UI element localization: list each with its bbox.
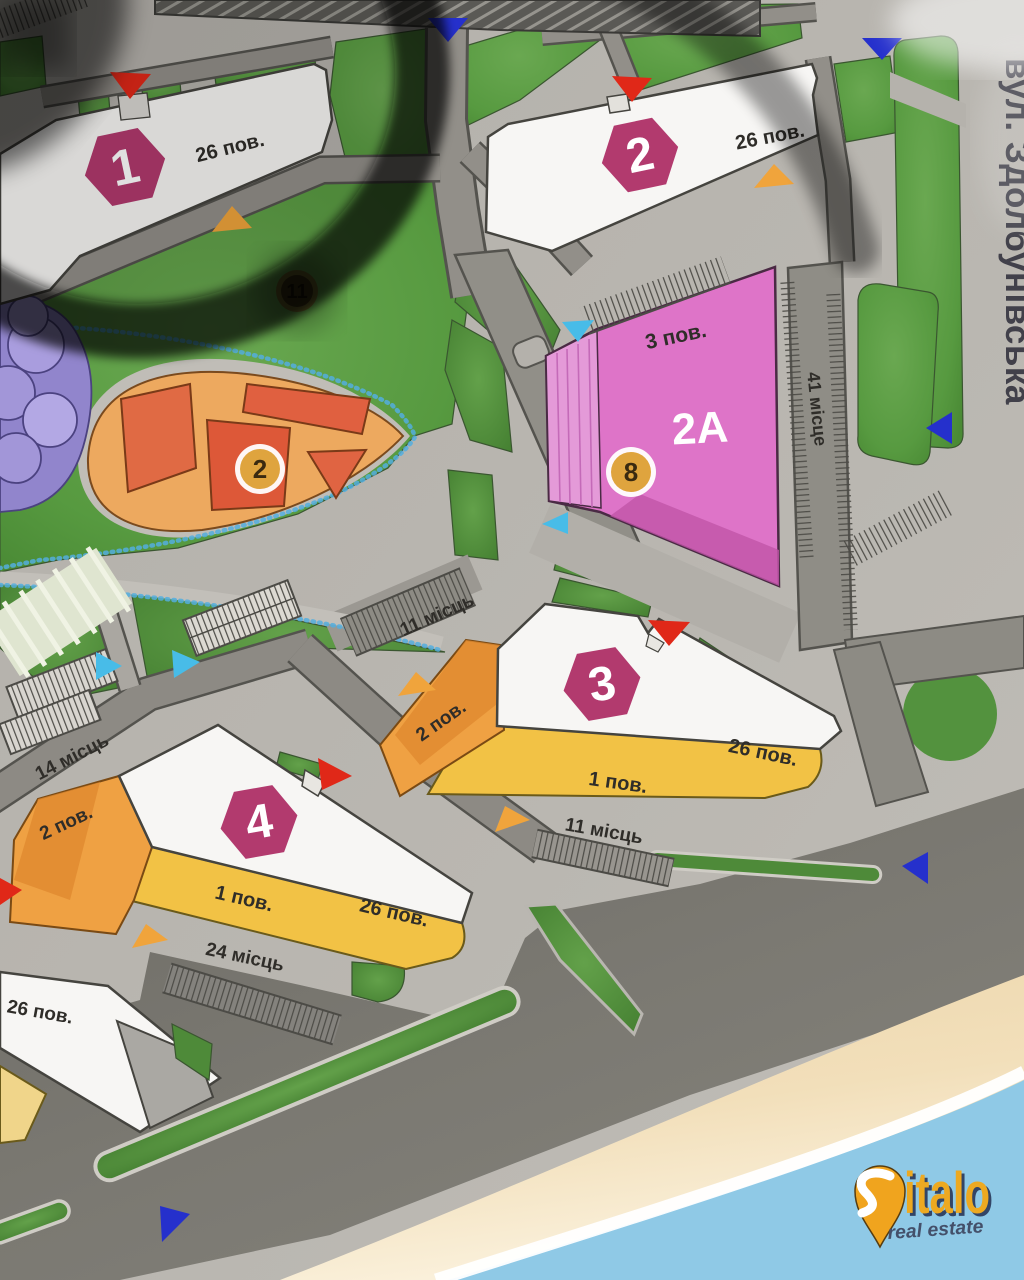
svg-text:2: 2	[253, 454, 267, 484]
svg-text:2А: 2А	[671, 403, 730, 455]
svg-text:8: 8	[624, 457, 638, 487]
